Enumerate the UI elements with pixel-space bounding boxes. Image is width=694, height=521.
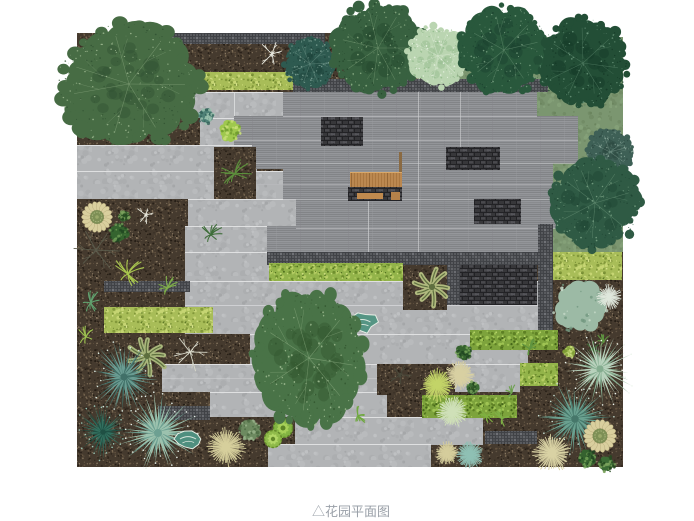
svg-text:△花园平面图: △花园平面图 <box>312 504 390 519</box>
